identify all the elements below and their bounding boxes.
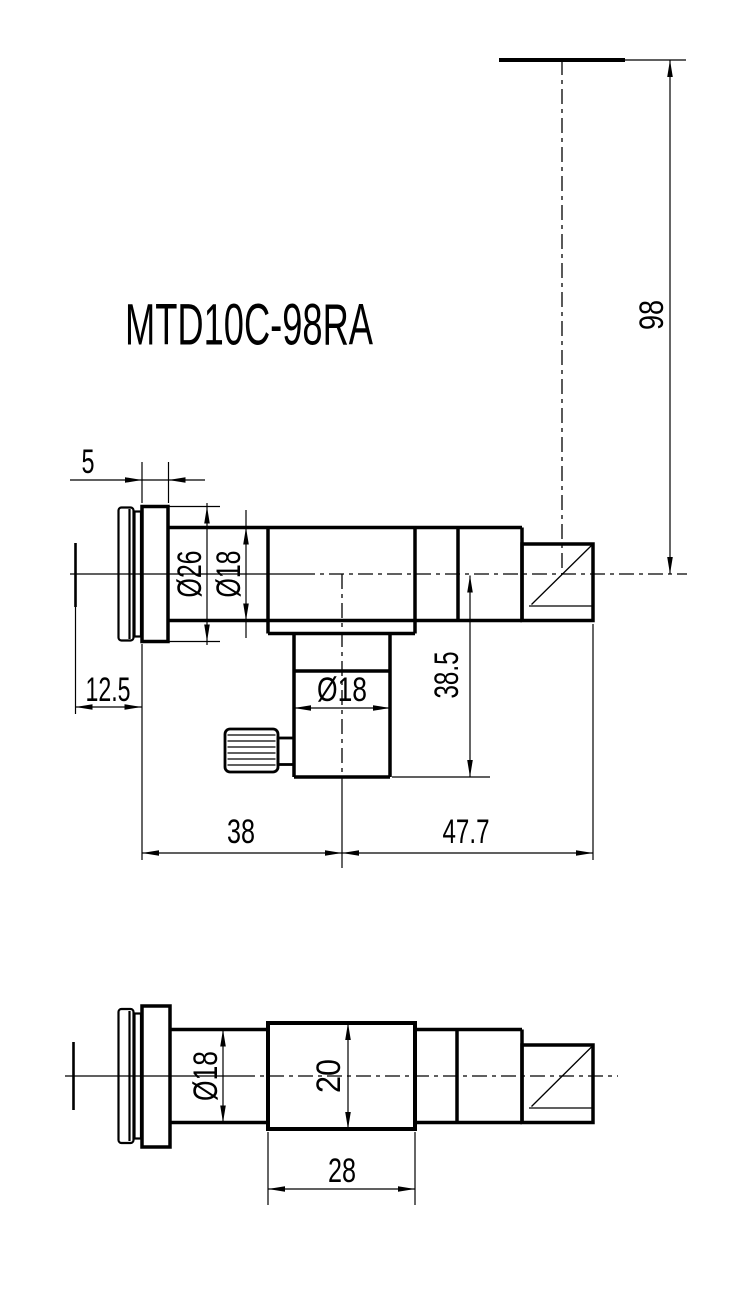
part-number-title: MTD10C-98RA: [125, 293, 373, 358]
dim-plan-o18-label: Ø18: [187, 1051, 225, 1101]
dim-5-label: 5: [82, 443, 95, 481]
dim-38-5-label: 38.5: [428, 652, 466, 699]
dim-28-label: 28: [328, 1152, 356, 1190]
dim-o18-label: Ø18: [210, 551, 248, 598]
dim-o18-arm-label: Ø18: [317, 671, 367, 709]
dim-47-7-label: 47.7: [443, 813, 490, 851]
dim-38-label: 38: [227, 813, 255, 851]
drawing-page: MTD10C-98RA 98: [0, 0, 756, 1300]
technical-drawing: MTD10C-98RA 98: [0, 0, 756, 1300]
page-background: [0, 0, 756, 1300]
dim-o26-label: Ø26: [171, 551, 209, 598]
dim-98-label: 98: [633, 300, 671, 330]
dim-12-5-label: 12.5: [86, 671, 131, 709]
dim-20-label: 20: [310, 1059, 348, 1093]
